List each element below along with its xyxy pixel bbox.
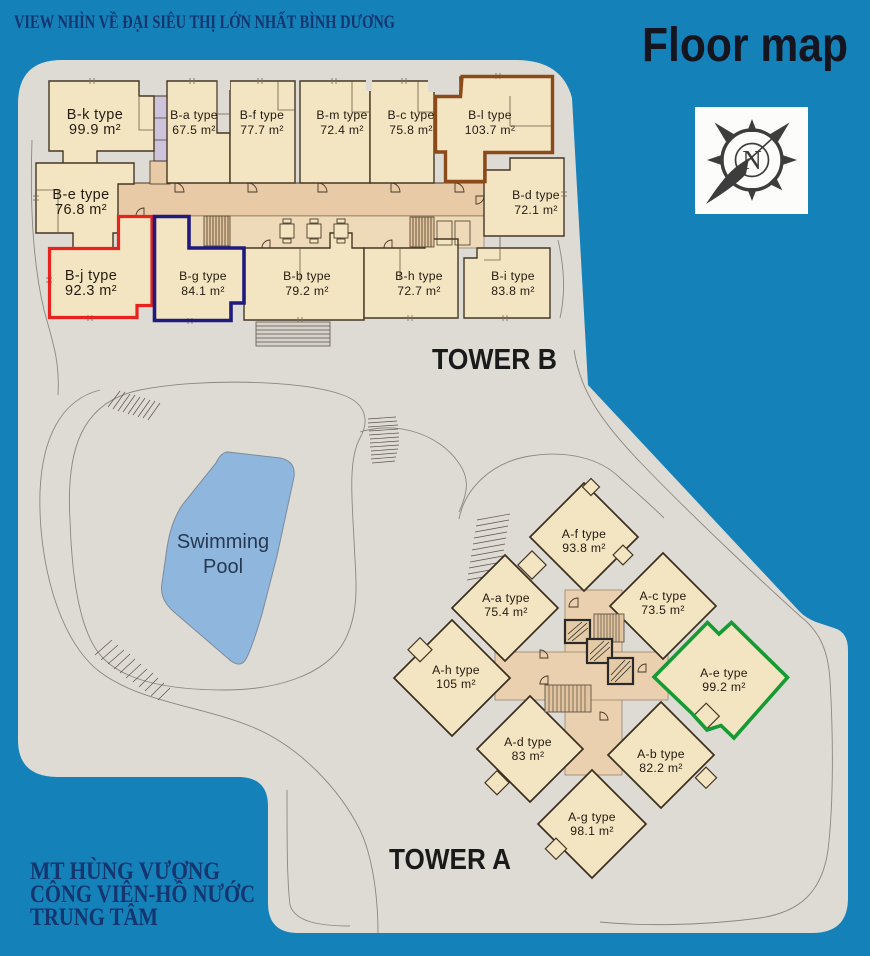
svg-text:A-h type: A-h type bbox=[432, 663, 480, 677]
svg-text:72.4 m²: 72.4 m² bbox=[320, 123, 363, 137]
svg-text:92.3 m²: 92.3 m² bbox=[65, 283, 117, 299]
svg-text:B-l type: B-l type bbox=[468, 108, 512, 122]
svg-text:B-g type: B-g type bbox=[179, 269, 227, 283]
svg-text:B-k type: B-k type bbox=[67, 107, 123, 123]
svg-text:A-b type: A-b type bbox=[637, 747, 685, 761]
svg-text:B-c type: B-c type bbox=[387, 108, 434, 122]
svg-text:76.8 m²: 76.8 m² bbox=[55, 202, 107, 218]
svg-text:93.8 m²: 93.8 m² bbox=[562, 541, 605, 555]
svg-text:99.9 m²: 99.9 m² bbox=[69, 122, 121, 138]
svg-text:Swimming: Swimming bbox=[177, 531, 269, 553]
svg-text:75.4 m²: 75.4 m² bbox=[484, 605, 527, 619]
svg-text:VIEW NHÌN VỀ ĐẠI SIÊU THỊ LỚN: VIEW NHÌN VỀ ĐẠI SIÊU THỊ LỚN NHẤT BÌNH … bbox=[14, 11, 395, 33]
svg-text:A-c type: A-c type bbox=[639, 589, 686, 603]
svg-text:B-e type: B-e type bbox=[52, 187, 109, 203]
svg-text:79.2 m²: 79.2 m² bbox=[285, 284, 328, 298]
svg-text:83 m²: 83 m² bbox=[512, 749, 545, 763]
svg-text:73.5 m²: 73.5 m² bbox=[641, 603, 684, 617]
svg-text:72.7 m²: 72.7 m² bbox=[397, 284, 440, 298]
svg-text:84.1 m²: 84.1 m² bbox=[181, 284, 224, 298]
svg-text:A-e type: A-e type bbox=[700, 666, 748, 680]
svg-text:A-g type: A-g type bbox=[568, 810, 616, 824]
svg-text:103.7 m²: 103.7 m² bbox=[465, 123, 516, 137]
svg-text:72.1 m²: 72.1 m² bbox=[514, 203, 557, 217]
svg-text:67.5 m²: 67.5 m² bbox=[172, 123, 215, 137]
svg-text:TOWER B: TOWER B bbox=[432, 344, 557, 376]
svg-text:B-a type: B-a type bbox=[170, 108, 218, 122]
svg-text:Floor map: Floor map bbox=[642, 19, 848, 72]
svg-text:B-i type: B-i type bbox=[491, 269, 535, 283]
svg-text:A-a type: A-a type bbox=[482, 591, 530, 605]
svg-text:B-b type: B-b type bbox=[283, 269, 331, 283]
svg-text:77.7 m²: 77.7 m² bbox=[240, 123, 283, 137]
svg-text:83.8 m²: 83.8 m² bbox=[491, 284, 534, 298]
svg-text:Pool: Pool bbox=[203, 556, 243, 578]
svg-text:82.2 m²: 82.2 m² bbox=[639, 761, 682, 775]
svg-text:105 m²: 105 m² bbox=[436, 677, 476, 691]
svg-text:B-f type: B-f type bbox=[240, 108, 284, 122]
svg-text:N: N bbox=[742, 145, 762, 175]
svg-text:99.2 m²: 99.2 m² bbox=[702, 680, 745, 694]
svg-text:TRUNG TÂM: TRUNG TÂM bbox=[30, 903, 158, 931]
svg-text:75.8 m²: 75.8 m² bbox=[389, 123, 432, 137]
svg-text:B-h type: B-h type bbox=[395, 269, 443, 283]
svg-text:B-m type: B-m type bbox=[316, 108, 367, 122]
svg-text:A-f type: A-f type bbox=[562, 527, 606, 541]
svg-text:98.1 m²: 98.1 m² bbox=[570, 824, 613, 838]
svg-text:B-d type: B-d type bbox=[512, 188, 560, 202]
svg-text:A-d type: A-d type bbox=[504, 735, 552, 749]
svg-text:B-j type: B-j type bbox=[65, 268, 117, 284]
svg-text:TOWER A: TOWER A bbox=[389, 844, 511, 876]
